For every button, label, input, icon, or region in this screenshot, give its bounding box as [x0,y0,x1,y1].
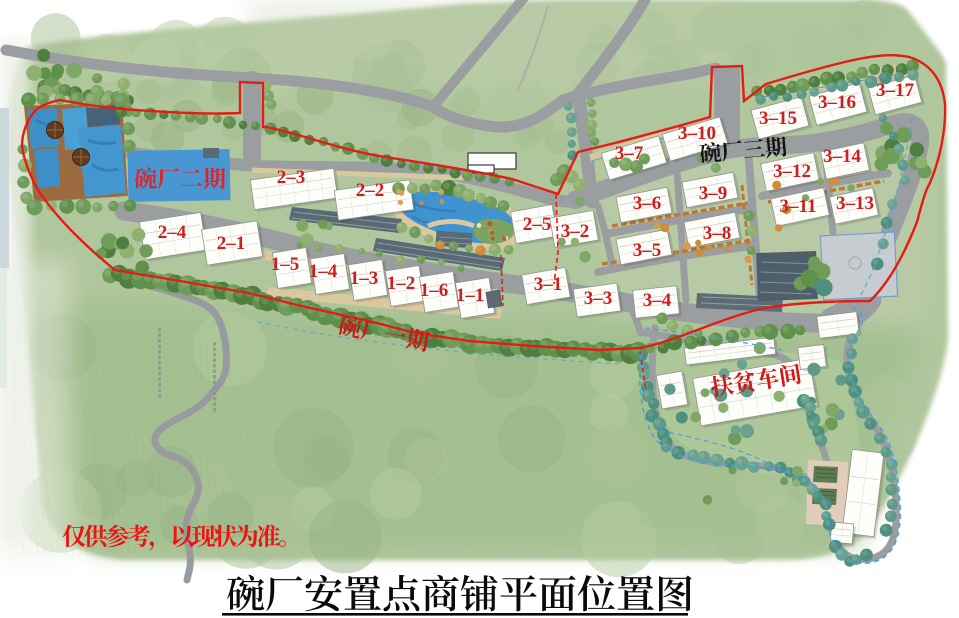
svg-text:2–2: 2–2 [356,180,385,201]
svg-text:3–11: 3–11 [780,196,817,217]
svg-text:3–4: 3–4 [643,290,672,311]
svg-text:3–3: 3–3 [584,288,613,309]
svg-text:1–1: 1–1 [456,285,485,306]
svg-text:3–8: 3–8 [703,223,732,244]
svg-text:1–3: 1–3 [350,268,379,289]
svg-text:3–2: 3–2 [561,221,590,242]
svg-text:1–6: 1–6 [420,280,449,301]
svg-text:3–14: 3–14 [823,146,862,167]
svg-text:2–1: 2–1 [217,233,246,254]
svg-text:3–17: 3–17 [876,80,915,101]
svg-text:3–10: 3–10 [678,123,716,144]
svg-text:1–4: 1–4 [309,261,338,282]
svg-text:2–3: 2–3 [277,167,306,188]
svg-text:3–7: 3–7 [615,143,644,164]
svg-text:2–5: 2–5 [523,214,552,235]
svg-text:3–15: 3–15 [759,108,797,129]
svg-text:1–2: 1–2 [387,273,416,294]
svg-text:3–12: 3–12 [773,161,811,182]
svg-text:3–1: 3–1 [534,274,563,295]
svg-text:3–5: 3–5 [633,240,662,261]
svg-text:3–13: 3–13 [836,193,874,214]
svg-text:1–5: 1–5 [271,254,300,275]
svg-text:3–9: 3–9 [699,183,728,204]
svg-text:2–4: 2–4 [158,222,187,243]
svg-text:3–6: 3–6 [633,193,662,214]
svg-text:3–16: 3–16 [818,92,856,113]
